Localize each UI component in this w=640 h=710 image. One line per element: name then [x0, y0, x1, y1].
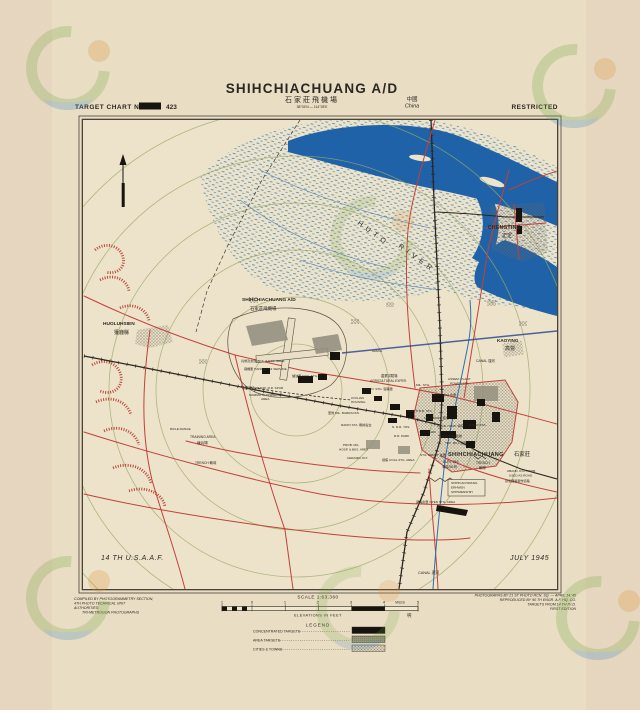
- map-label: 戰壕: [479, 465, 486, 470]
- country-chinese: 中國: [406, 95, 418, 103]
- map-label: HOUSING: [351, 400, 366, 404]
- airfield-label: SHIHCHIACHUANG A/D: [242, 297, 296, 303]
- map-label: 海拔251呎: [442, 464, 458, 469]
- map-label: ELEV. 251': [443, 460, 459, 464]
- header: TARGET CHART No. 423 SHIHCHIACHUANG A/D …: [75, 81, 558, 111]
- map-label: RIFLE RANGE: [170, 427, 191, 431]
- map-label: ADMIN.: [372, 349, 383, 353]
- map-label: STG. AREA 倉庫: [433, 392, 456, 397]
- map-label: 廢棄鐵路 ABAND. R.R. SPUR: [242, 385, 284, 390]
- map-label: MIL. ADMIN. 軍政: [424, 415, 449, 420]
- page-title-chinese: 石家莊飛機場: [285, 95, 339, 104]
- city-label: SHIHCHIACHUANG: [448, 452, 504, 458]
- map-label: AREA: [261, 397, 270, 401]
- alt-name-2: ERHWEN: [451, 486, 465, 490]
- map-label: R.R. PARK: [394, 434, 410, 438]
- page-title: SHIHCHIACHUANG A/D: [226, 81, 399, 96]
- map-label: RADIO STA. 無線電台: [341, 422, 372, 427]
- alt-name-3: SHIHMENSHIH: [451, 490, 473, 494]
- compiled-note-line: AUTHORITIES:: [73, 606, 99, 610]
- map-label: 飛機庫 HANGERS & SERVICE: [244, 366, 287, 371]
- scale-tick: 1: [221, 600, 224, 605]
- map-label: PRISON 監獄: [443, 433, 462, 438]
- legend: CONCENTRATED TARGETS AREA TARGETS CITIES…: [253, 627, 385, 652]
- huoluhsien-label: HUOLUHSIEN: [103, 321, 135, 327]
- map-label: 煉焦 COAL STG. AREA: [382, 457, 415, 462]
- country-name: China: [405, 104, 419, 110]
- city-label-cn: 石家莊: [514, 450, 531, 458]
- elevations-label: ELEVATIONS IN FEET: [294, 614, 342, 618]
- map-date: JULY 1945: [509, 555, 549, 562]
- photo-note-line: TARGETS FROM 14 TH P.I.D.: [527, 603, 576, 607]
- chart-number-value: 423: [166, 104, 177, 111]
- map-label: PROB. MIL.: [343, 443, 360, 447]
- chengting-label: CHENGTING: [488, 225, 521, 231]
- legend-title: LEGEND: [306, 623, 331, 628]
- compiled-note-line: 4TH PHOTO TECHNICAL UNIT: [74, 602, 126, 606]
- map-label: 露天倉庫 OPEN STG. AREA: [416, 499, 456, 504]
- kaoying-label: KAOYING: [497, 338, 519, 343]
- map-label: MIL. STG.: [416, 383, 430, 387]
- map-label: RADIO STA.: [469, 423, 486, 427]
- legend-swatch-concentrated: [352, 627, 385, 634]
- scale-tick: 4: [383, 600, 386, 605]
- scale-bar: [222, 604, 418, 612]
- map-label: ASSEM. PLANT: [448, 377, 471, 381]
- target-chart-page: TARGET CHART No. 423 SHIHCHIACHUANG A/D …: [0, 0, 640, 710]
- redaction-block: [139, 103, 161, 110]
- map-label: TEX. MILL 織廠: [445, 440, 467, 445]
- chart-canvas: TARGET CHART No. 423 SHIHCHIACHUANG A/D …: [0, 0, 640, 710]
- alt-name-1: SHIHKIACHWANG: [451, 481, 478, 485]
- compiled-note-line: TRI-METROGON PHOTOGRAPHS: [82, 611, 140, 615]
- map-label: 兵營及倉庫 BKS. & STG. AREA: [241, 358, 285, 363]
- map-label: 儲油庫 FUEL STG.: [292, 373, 318, 378]
- map-label: USED AS ROAD: [509, 474, 533, 478]
- legend-swatch-area: [352, 636, 385, 643]
- footer: COMPILED BY PHOTOGRAMMETRY SECTION, 4TH …: [73, 594, 576, 652]
- legend-swatch-cities: [352, 645, 385, 652]
- usaaf-credit: 14 TH U.S.A.A.F.: [101, 555, 164, 562]
- legend-item-label: CONCENTRATED TARGETS: [253, 630, 301, 634]
- map-label: CERAMIC PLT.: [347, 456, 368, 460]
- map-label: PARK: [428, 430, 437, 434]
- map-label: 練兵場: [197, 440, 208, 445]
- map-label: AMMO. STG. 彈藥庫: [364, 386, 393, 391]
- photo-note-line: REPRODUCED BY 90 TH ENGR. A.F. HQ. CO.: [500, 598, 576, 602]
- coordinates: 38°04'N — 114°28'E: [297, 105, 328, 109]
- scale-tick: 0: [251, 600, 254, 605]
- kaoying-label-cn: 高營: [505, 345, 515, 352]
- airfield-label-cn: 石家莊飛機場: [250, 305, 277, 312]
- map-body: HUTORIVERCHENGTING正定KAOYING高營CANAL 運河HUO…: [15, 109, 577, 671]
- chengting-label-cn: 正定: [502, 232, 512, 239]
- photo-note-line: FIRST EDITION: [550, 607, 576, 611]
- scale-tick: 5: [417, 600, 420, 605]
- map-label: 軍營 MIL. BARRACKS: [328, 410, 359, 415]
- map-label: ABAND. R.R. PROB.: [507, 469, 536, 473]
- chart-number-label: TARGET CHART No.: [75, 104, 146, 111]
- map-label: TRENCH 戰壕: [195, 460, 217, 465]
- scale-miles-label: MILES: [395, 601, 405, 605]
- elevations-cn: 呎: [407, 613, 412, 619]
- scale-tick: 3: [350, 600, 353, 605]
- map-label: N. R.R. YDS.: [392, 425, 410, 429]
- legend-item-label: AREA TARGETS: [253, 639, 281, 643]
- map-label: TRENCH: [476, 461, 490, 465]
- map-label: 廢棄鐵路現作道路: [505, 478, 530, 483]
- classification: RESTRICTED: [511, 104, 558, 111]
- map-label: STG. DEPOT 倉庫: [420, 452, 446, 457]
- canal-label-upper: CANAL 運河: [476, 358, 496, 363]
- map-label: NORTH R.R. STA.: [407, 409, 433, 413]
- compiled-note-line: COMPILED BY PHOTOGRAMMETRY SECTION,: [74, 597, 153, 601]
- map-label: HOSP. & BKS. AREA: [339, 448, 369, 452]
- huoluhsien-label-cn: 獲鹿縣: [114, 329, 129, 336]
- map-label: POWER STA.: [450, 382, 469, 386]
- scale-tick: 1: [284, 600, 287, 605]
- canal-label-lower: CANAL 運河: [418, 570, 439, 575]
- map-label: AGRICULTURAL EXPER.: [370, 379, 407, 383]
- map-label: 農業試驗場: [381, 373, 398, 378]
- map-label: PROB. HOSP. 病院: [437, 423, 464, 428]
- scale-tick: 2: [317, 600, 320, 605]
- photo-note-line: PHOTOGRAPHS BY 21 ST PHOTO RCN. SQ. — AP…: [475, 594, 576, 598]
- map-label: TRAINING AREA: [190, 435, 216, 439]
